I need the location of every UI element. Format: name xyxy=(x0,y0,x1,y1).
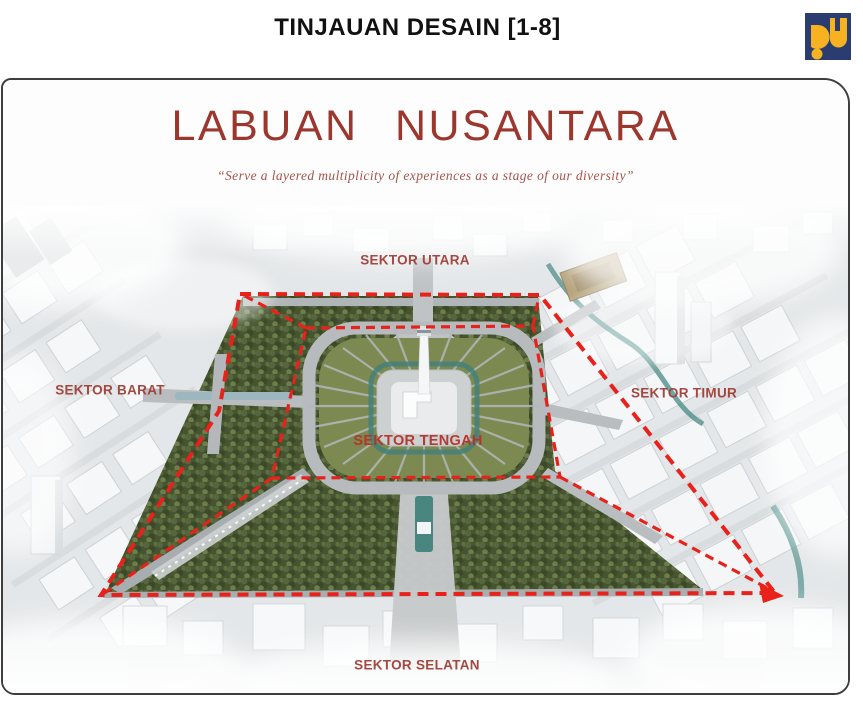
page-title: TINJAUAN DESAIN [1-8] xyxy=(0,14,849,42)
sector-label-utara: SEKTOR UTARA xyxy=(360,253,470,268)
sector-label-timur: SEKTOR TIMUR xyxy=(631,386,737,401)
aerial-render xyxy=(3,206,848,693)
monument-spire xyxy=(418,334,430,394)
page-header: TINJAUAN DESAIN [1-8] xyxy=(0,0,863,78)
slide-page: TINJAUAN DESAIN [1-8] LABUAN NUSANTARA “… xyxy=(0,0,863,720)
sector-label-barat: SEKTOR BARAT xyxy=(55,383,165,398)
slide-subtitle: “Serve a layered multiplicity of experie… xyxy=(3,168,848,184)
title-block: LABUAN NUSANTARA “Serve a layered multip… xyxy=(3,80,848,206)
sector-label-selatan: SEKTOR SELATAN xyxy=(354,658,480,673)
slide-title: LABUAN NUSANTARA xyxy=(3,102,848,151)
central-plaza xyxy=(309,324,539,488)
slide-frame: LABUAN NUSANTARA “Serve a layered multip… xyxy=(1,78,850,695)
aerial-photo: SEKTOR UTARA SEKTOR BARAT SEKTOR TIMUR S… xyxy=(3,206,848,693)
pupr-logo xyxy=(805,13,851,60)
sector-label-tengah: SEKTOR TENGAH xyxy=(353,433,482,449)
